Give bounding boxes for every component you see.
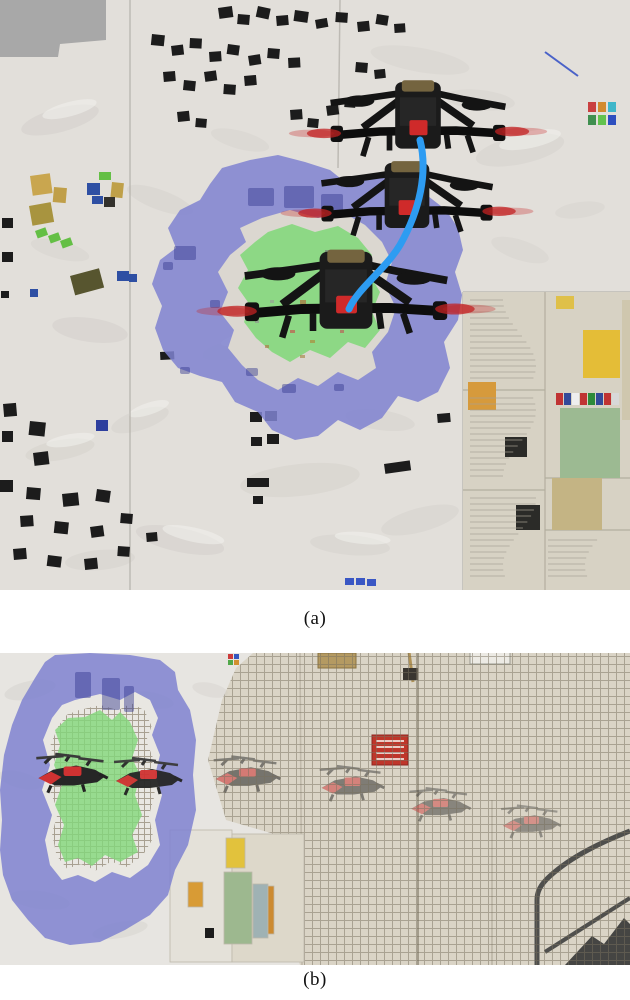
newspaper-collage — [170, 830, 304, 962]
paper-figure: (a) (b) — [0, 0, 630, 1000]
photo-b-sideview-drone-approach — [0, 653, 630, 965]
photo-a-topdown-drone-flight — [0, 0, 630, 590]
caption-a: (a) — [0, 590, 630, 653]
caption-b: (b) — [0, 965, 630, 1000]
newspaper-panel — [463, 292, 630, 590]
